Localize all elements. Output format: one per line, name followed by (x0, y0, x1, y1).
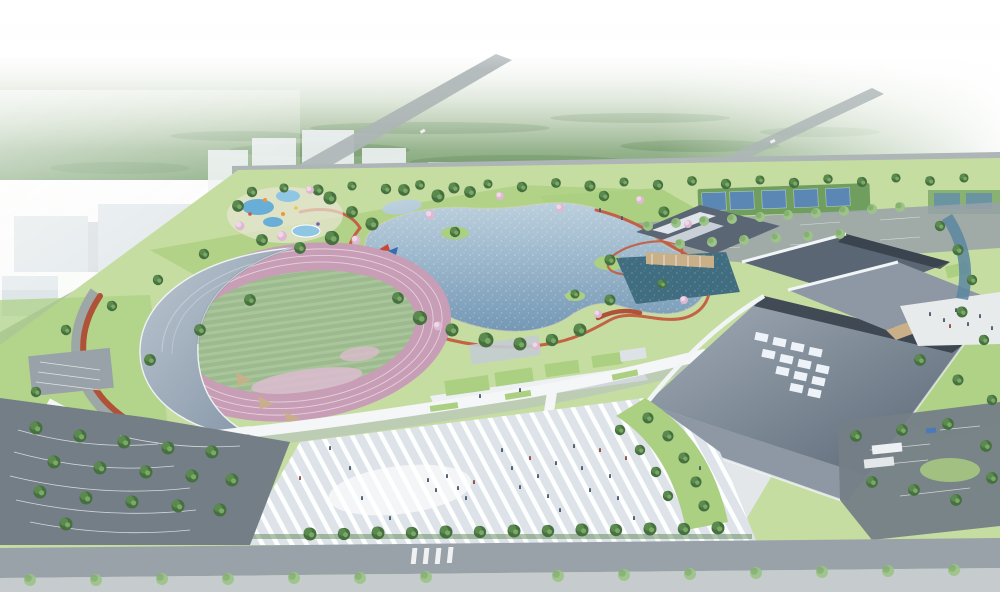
park-rendering (0, 0, 1000, 592)
southeast-parking (838, 402, 1000, 540)
west-lot (28, 348, 114, 396)
plaza-hedge (242, 534, 752, 539)
top-vignette (0, 0, 1000, 70)
rendering-canvas (0, 0, 1000, 592)
